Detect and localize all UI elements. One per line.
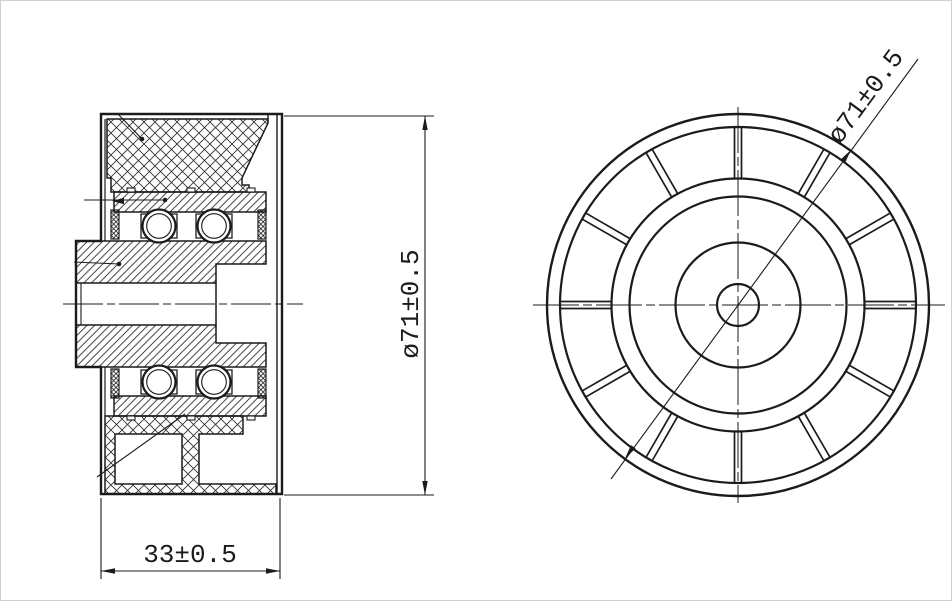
technical-drawing-page: ø71±0.5 33±0.5 ø71±0.5 xyxy=(0,0,952,601)
arrowhead-right xyxy=(266,568,280,573)
dimension-line-diagonal xyxy=(611,59,918,479)
diameter-dim-text-front: ø71±0.5 xyxy=(822,44,911,150)
section-view xyxy=(63,114,303,494)
arrowhead-up xyxy=(422,116,427,130)
arrowhead-down xyxy=(422,481,427,495)
arrowhead-left xyxy=(101,568,115,573)
dimension-diameter-section: ø71±0.5 xyxy=(284,116,434,495)
bearing-outer-race-top xyxy=(114,192,266,212)
bearing-outer-race-bottom xyxy=(114,396,266,416)
dimension-width: 33±0.5 xyxy=(101,498,280,579)
diameter-dim-text-section: ø71±0.5 xyxy=(396,249,426,358)
pulley-body-bottom-section xyxy=(105,416,276,494)
width-dim-text: 33±0.5 xyxy=(143,540,237,570)
front-view xyxy=(533,107,945,503)
dimension-diameter-front: ø71±0.5 xyxy=(611,44,918,479)
hub-inner-race-top xyxy=(76,241,266,283)
hub-inner-race-bottom xyxy=(76,325,266,367)
front-center-lines xyxy=(533,107,945,503)
pulley-body-top-section xyxy=(107,119,268,192)
pulley-drawing: ø71±0.5 33±0.5 ø71±0.5 xyxy=(1,1,952,601)
